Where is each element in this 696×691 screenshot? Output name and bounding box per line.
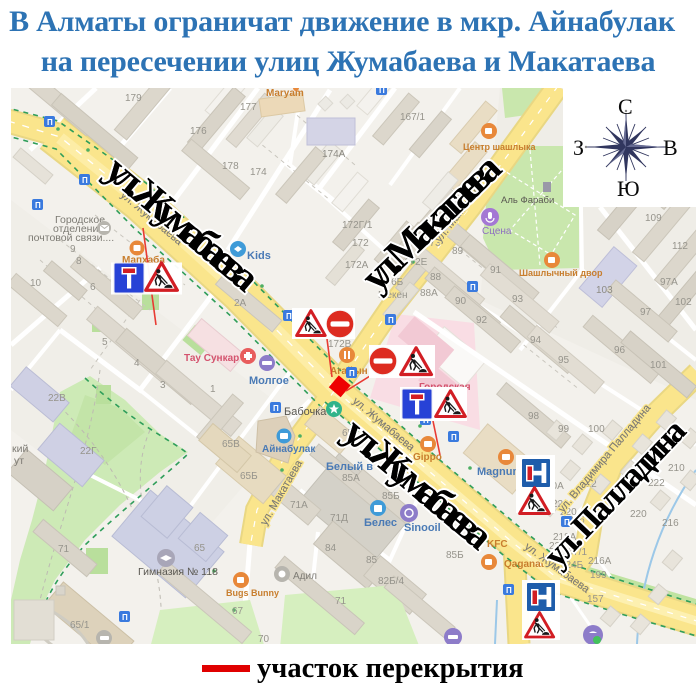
svg-text:П: П: [82, 176, 88, 185]
svg-text:65/1: 65/1: [70, 620, 90, 631]
svg-text:кий: кий: [12, 443, 28, 455]
svg-text:85: 85: [366, 555, 378, 566]
svg-text:Сцена: Сцена: [482, 226, 512, 237]
svg-text:5: 5: [102, 337, 108, 348]
svg-text:П: П: [122, 613, 128, 622]
svg-text:Молгое: Молгое: [249, 375, 289, 387]
svg-text:Адил: Адил: [293, 571, 317, 582]
svg-text:П: П: [286, 312, 292, 321]
svg-text:216: 216: [662, 518, 679, 529]
svg-text:П: П: [379, 86, 385, 95]
svg-text:177: 177: [240, 102, 257, 113]
svg-text:71Д: 71Д: [330, 513, 348, 524]
svg-text:89: 89: [452, 246, 464, 257]
svg-text:2А: 2А: [234, 298, 247, 309]
svg-text:70: 70: [258, 634, 270, 645]
svg-text:98: 98: [528, 411, 540, 422]
svg-text:82Б/4: 82Б/4: [378, 576, 404, 587]
svg-text:90: 90: [455, 296, 467, 307]
svg-text:102: 102: [675, 297, 692, 308]
svg-text:84: 84: [325, 543, 337, 554]
svg-text:22В: 22В: [48, 393, 66, 404]
svg-text:Бабочка: Бабочка: [284, 406, 327, 418]
svg-text:95: 95: [558, 355, 570, 366]
svg-text:Bugs Bunny: Bugs Bunny: [226, 588, 279, 598]
svg-text:85А: 85А: [342, 473, 360, 484]
svg-text:100: 100: [588, 424, 605, 435]
svg-text:93: 93: [512, 294, 524, 305]
svg-text:Аль Фараби: Аль Фараби: [501, 195, 554, 206]
svg-text:112: 112: [672, 241, 688, 252]
svg-text:179: 179: [125, 93, 142, 104]
svg-text:220: 220: [630, 509, 647, 520]
svg-text:178: 178: [222, 161, 239, 172]
svg-text:88А: 88А: [420, 288, 438, 299]
svg-text:71А: 71А: [290, 500, 308, 511]
svg-text:KFC: KFC: [487, 539, 508, 550]
svg-text:4: 4: [134, 358, 140, 369]
svg-text:П: П: [273, 404, 279, 413]
svg-text:172: 172: [352, 238, 369, 249]
svg-text:176: 176: [190, 126, 207, 137]
svg-text:1: 1: [210, 384, 216, 395]
svg-text:99: 99: [558, 424, 570, 435]
svg-text:71: 71: [335, 596, 347, 607]
svg-text:10: 10: [30, 278, 42, 289]
svg-text:8: 8: [76, 256, 82, 267]
svg-text:172Г/1: 172Г/1: [342, 220, 373, 231]
svg-text:174А: 174А: [322, 149, 346, 160]
svg-text:91: 91: [490, 265, 502, 276]
svg-text:109: 109: [645, 213, 662, 224]
svg-text:92: 92: [476, 315, 488, 326]
svg-text:П: П: [506, 586, 512, 595]
svg-text:Белес: Белес: [364, 517, 397, 529]
svg-text:67: 67: [232, 606, 244, 617]
svg-text:65: 65: [194, 543, 206, 554]
svg-text:П: П: [388, 316, 394, 325]
svg-text:Гимназия № 118: Гимназия № 118: [138, 566, 218, 578]
svg-text:Тау Сункар: Тау Сункар: [184, 353, 239, 364]
svg-text:157: 157: [587, 594, 604, 605]
svg-text:ут: ут: [14, 455, 24, 467]
svg-text:174: 174: [250, 167, 267, 178]
svg-text:101: 101: [650, 360, 667, 371]
svg-text:9: 9: [70, 244, 76, 255]
svg-text:88: 88: [430, 272, 442, 283]
svg-text:П: П: [451, 433, 457, 442]
svg-text:П: П: [349, 369, 355, 378]
svg-text:97: 97: [640, 307, 652, 318]
svg-text:94: 94: [530, 335, 542, 346]
svg-text:103: 103: [596, 285, 613, 296]
svg-text:97А: 97А: [660, 277, 678, 288]
svg-text:С: С: [618, 94, 633, 119]
svg-text:6: 6: [90, 282, 96, 293]
svg-text:Шашлычный двор: Шашлычный двор: [519, 268, 603, 278]
svg-text:П: П: [470, 283, 476, 292]
svg-text:65Б: 65Б: [240, 471, 258, 482]
svg-text:П: П: [35, 201, 41, 210]
svg-text:167/1: 167/1: [400, 112, 425, 123]
svg-text:З: З: [573, 135, 584, 160]
svg-text:85Б: 85Б: [446, 550, 464, 561]
svg-text:199: 199: [590, 570, 607, 581]
svg-text:П: П: [47, 118, 53, 127]
svg-text:В: В: [663, 135, 678, 160]
svg-text:96: 96: [614, 345, 626, 356]
svg-text:22Г: 22Г: [80, 446, 97, 457]
svg-text:Айнабулак: Айнабулак: [262, 443, 316, 455]
svg-text:Ю: Ю: [617, 176, 640, 201]
svg-text:210: 210: [668, 463, 685, 474]
svg-text:216А: 216А: [588, 556, 612, 567]
svg-text:71: 71: [58, 544, 70, 555]
svg-text:65В: 65В: [222, 439, 240, 450]
svg-text:3: 3: [160, 380, 166, 391]
